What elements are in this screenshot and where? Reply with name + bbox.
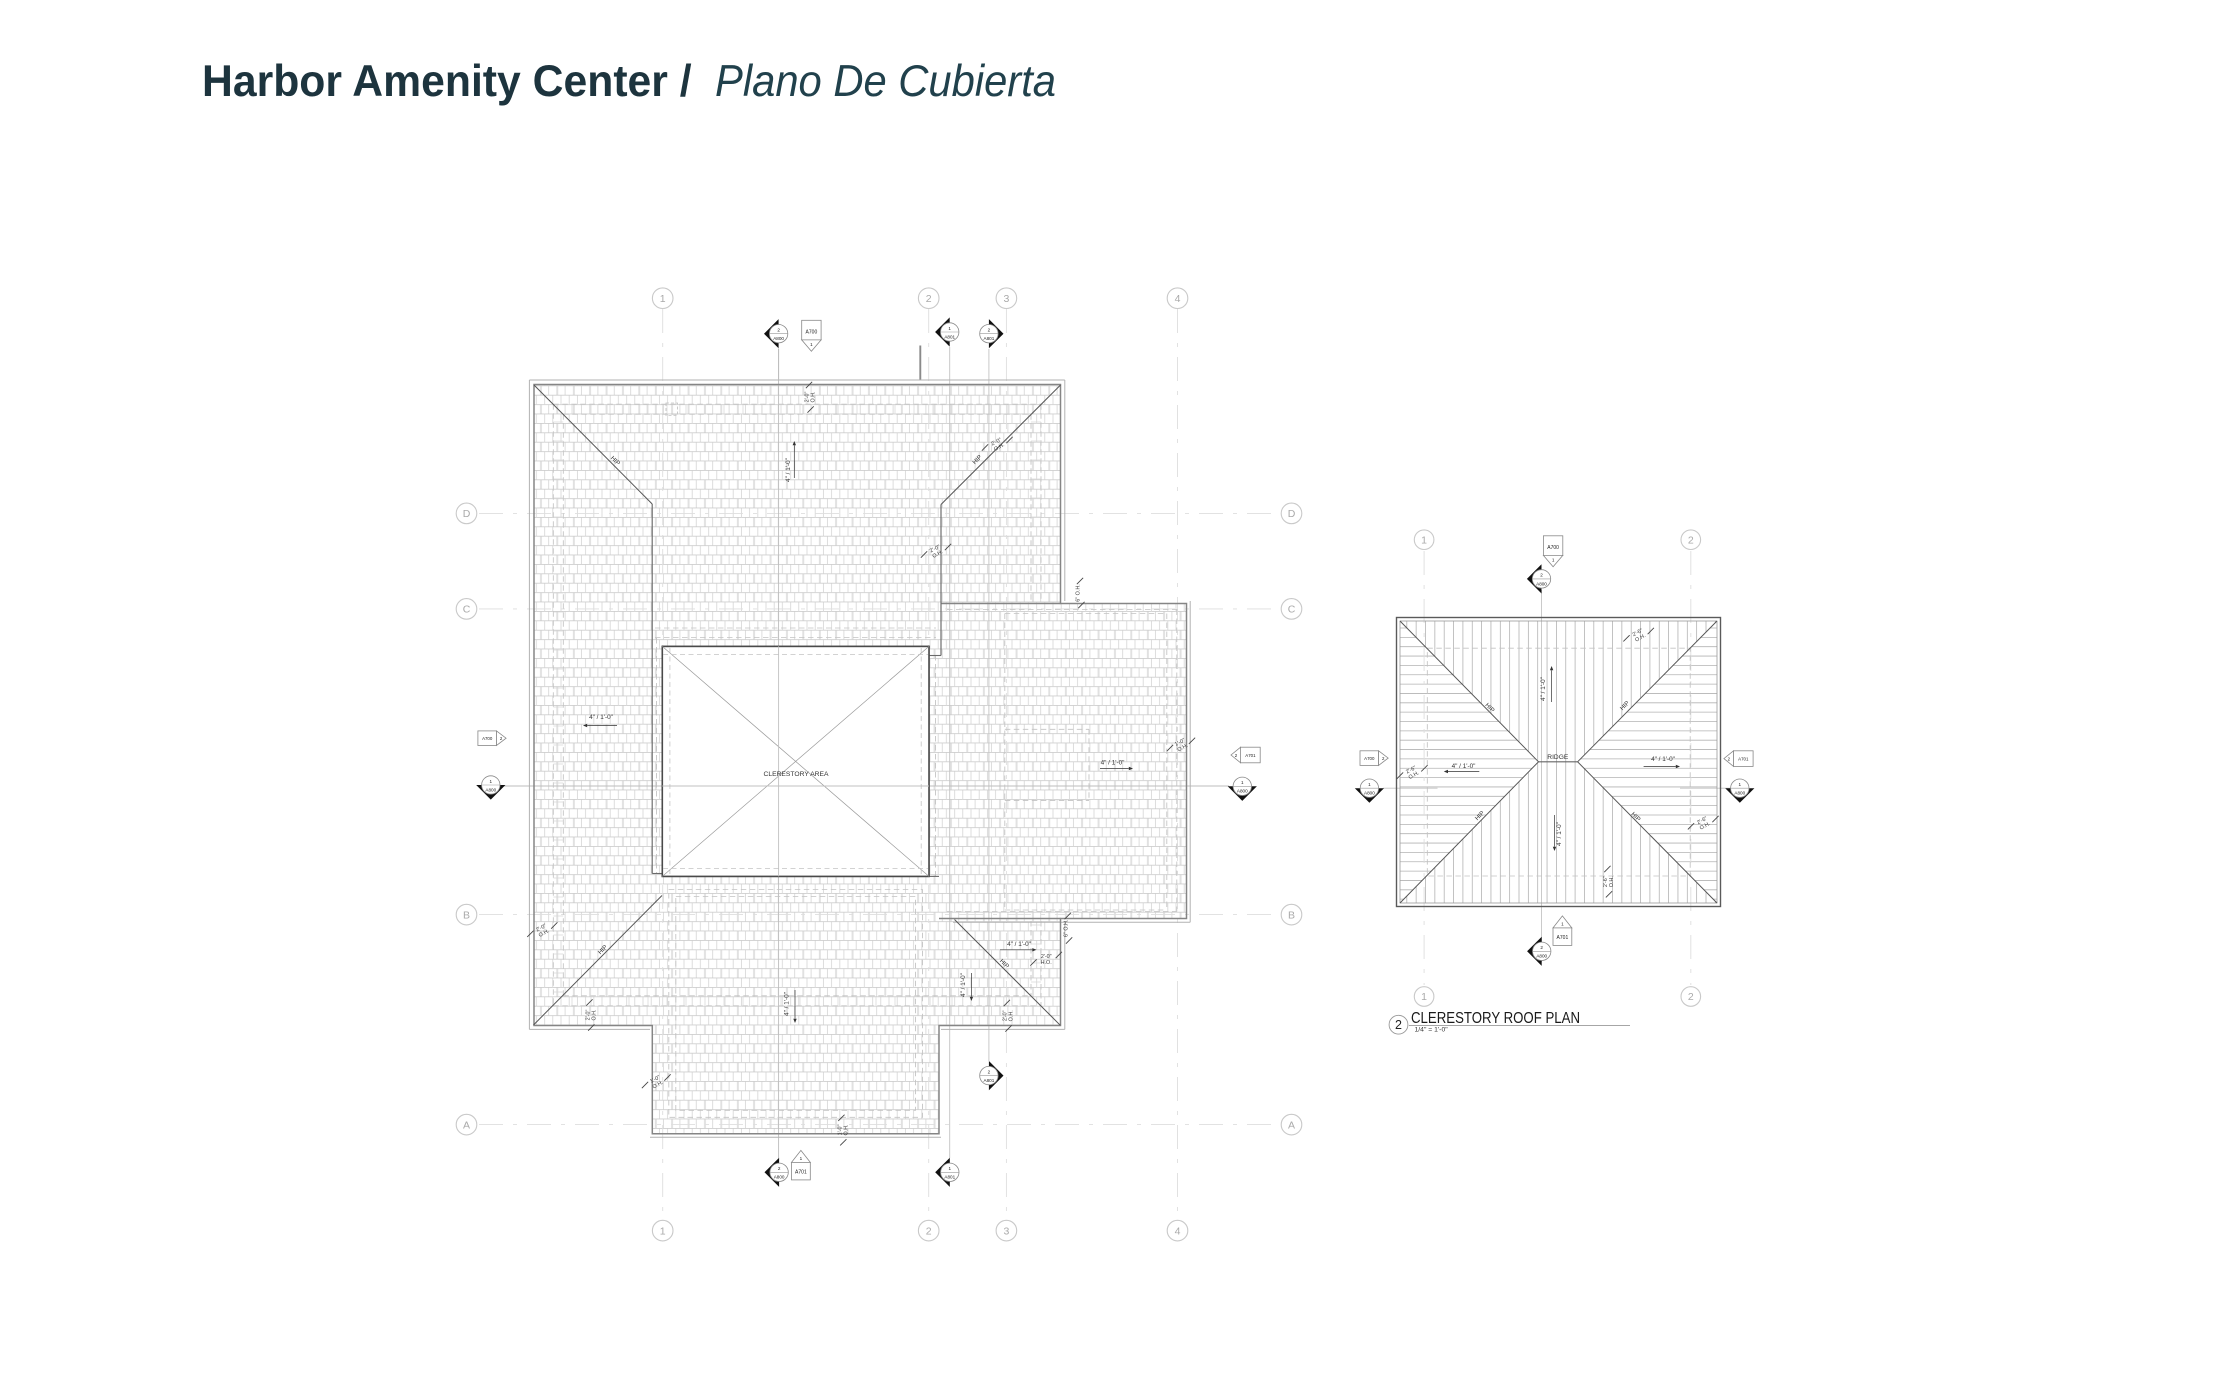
svg-text:2: 2: [778, 1166, 781, 1171]
svg-text:2: 2: [1540, 945, 1543, 950]
svg-text:4" / 1'-0": 4" / 1'-0": [1101, 760, 1125, 767]
svg-text:O.H.: O.H.: [811, 391, 817, 402]
svg-text:A700: A700: [806, 329, 818, 335]
svg-text:CLERESTORY AREA: CLERESTORY AREA: [764, 771, 829, 778]
svg-text:D: D: [1288, 508, 1296, 520]
svg-text:A800: A800: [1364, 791, 1375, 796]
svg-text:3: 3: [1003, 293, 1009, 305]
svg-text:A800: A800: [774, 1175, 785, 1180]
svg-text:B: B: [1288, 909, 1295, 921]
svg-text:1: 1: [949, 1166, 952, 1171]
svg-text:2: 2: [926, 293, 932, 305]
svg-text:A701: A701: [1245, 753, 1256, 758]
svg-text:2: 2: [777, 328, 780, 333]
svg-text:HIP: HIP: [1474, 810, 1486, 822]
svg-text:A701: A701: [795, 1170, 807, 1176]
svg-text:4" / 1'-0": 4" / 1'-0": [960, 973, 967, 997]
svg-text:1: 1: [490, 779, 493, 784]
svg-text:C: C: [463, 604, 471, 616]
svg-text:1: 1: [1421, 991, 1427, 1003]
svg-text:6" O.H.: 6" O.H.: [1076, 584, 1082, 602]
svg-text:O.H.: O.H.: [843, 1124, 849, 1135]
svg-text:4" / 1'-0": 4" / 1'-0": [1651, 756, 1675, 763]
svg-text:1: 1: [1368, 782, 1371, 787]
svg-text:1: 1: [800, 1156, 803, 1161]
svg-text:1: 1: [1739, 782, 1742, 787]
svg-text:A701: A701: [1557, 935, 1569, 941]
svg-text:2: 2: [988, 328, 991, 333]
svg-text:A700: A700: [1547, 545, 1559, 551]
svg-text:2: 2: [1395, 1018, 1402, 1032]
svg-text:A801: A801: [984, 1078, 995, 1083]
svg-text:4" / 1'-0": 4" / 1'-0": [589, 714, 613, 721]
svg-text:H.O.: H.O.: [1041, 960, 1052, 966]
svg-text:A800: A800: [1237, 789, 1248, 794]
svg-text:4" / 1'-0": 4" / 1'-0": [1540, 677, 1547, 701]
svg-text:1: 1: [660, 1225, 666, 1237]
svg-text:2: 2: [988, 1069, 991, 1074]
svg-text:B: B: [463, 909, 470, 921]
svg-text:A801: A801: [944, 1175, 955, 1180]
svg-text:A800: A800: [1536, 581, 1547, 586]
svg-text:1: 1: [1241, 780, 1244, 785]
svg-text:1: 1: [948, 326, 951, 331]
svg-text:1: 1: [1552, 558, 1555, 563]
svg-text:1: 1: [810, 342, 813, 347]
svg-text:2: 2: [1540, 573, 1543, 578]
svg-text:A801: A801: [984, 336, 995, 341]
svg-text:1: 1: [660, 293, 666, 305]
svg-text:4" / 1'-0": 4" / 1'-0": [1556, 822, 1563, 846]
svg-text:C: C: [1288, 604, 1296, 616]
svg-text:A801: A801: [944, 334, 955, 339]
svg-text:O.H.: O.H.: [591, 1009, 597, 1020]
svg-text:2: 2: [1688, 991, 1694, 1003]
svg-text:4" / 1'-0": 4" / 1'-0": [1452, 763, 1476, 770]
svg-text:2: 2: [1688, 534, 1694, 546]
svg-text:A701: A701: [1738, 757, 1749, 762]
svg-text:3: 3: [1003, 1225, 1009, 1237]
svg-text:1: 1: [1561, 922, 1564, 927]
svg-text:D: D: [463, 508, 471, 520]
svg-text:A: A: [1288, 1119, 1295, 1131]
svg-text:4: 4: [1175, 1225, 1181, 1237]
svg-text:1: 1: [1421, 534, 1427, 546]
svg-text:A800: A800: [773, 336, 784, 341]
svg-text:4" / 1'-0": 4" / 1'-0": [785, 458, 792, 482]
svg-text:A800: A800: [1734, 791, 1745, 796]
svg-text:O.H.: O.H.: [1609, 876, 1615, 887]
svg-text:4" / 1'-0": 4" / 1'-0": [1007, 941, 1031, 948]
svg-text:A: A: [463, 1119, 470, 1131]
svg-text:2: 2: [926, 1225, 932, 1237]
svg-text:O.H.: O.H.: [1009, 1010, 1015, 1021]
svg-text:A800: A800: [485, 787, 496, 792]
svg-text:A700: A700: [482, 736, 493, 741]
svg-text:4" / 1'-0": 4" / 1'-0": [784, 992, 791, 1016]
svg-text:1/4" = 1'-0": 1/4" = 1'-0": [1415, 1027, 1449, 1034]
svg-text:4: 4: [1175, 293, 1181, 305]
svg-text:6" O.H.: 6" O.H.: [1063, 920, 1069, 938]
svg-text:RIDGE: RIDGE: [1547, 754, 1569, 761]
svg-text:A700: A700: [1364, 756, 1375, 761]
svg-text:A800: A800: [1536, 954, 1547, 959]
svg-text:CLERESTORY ROOF PLAN: CLERESTORY ROOF PLAN: [1411, 1010, 1580, 1027]
